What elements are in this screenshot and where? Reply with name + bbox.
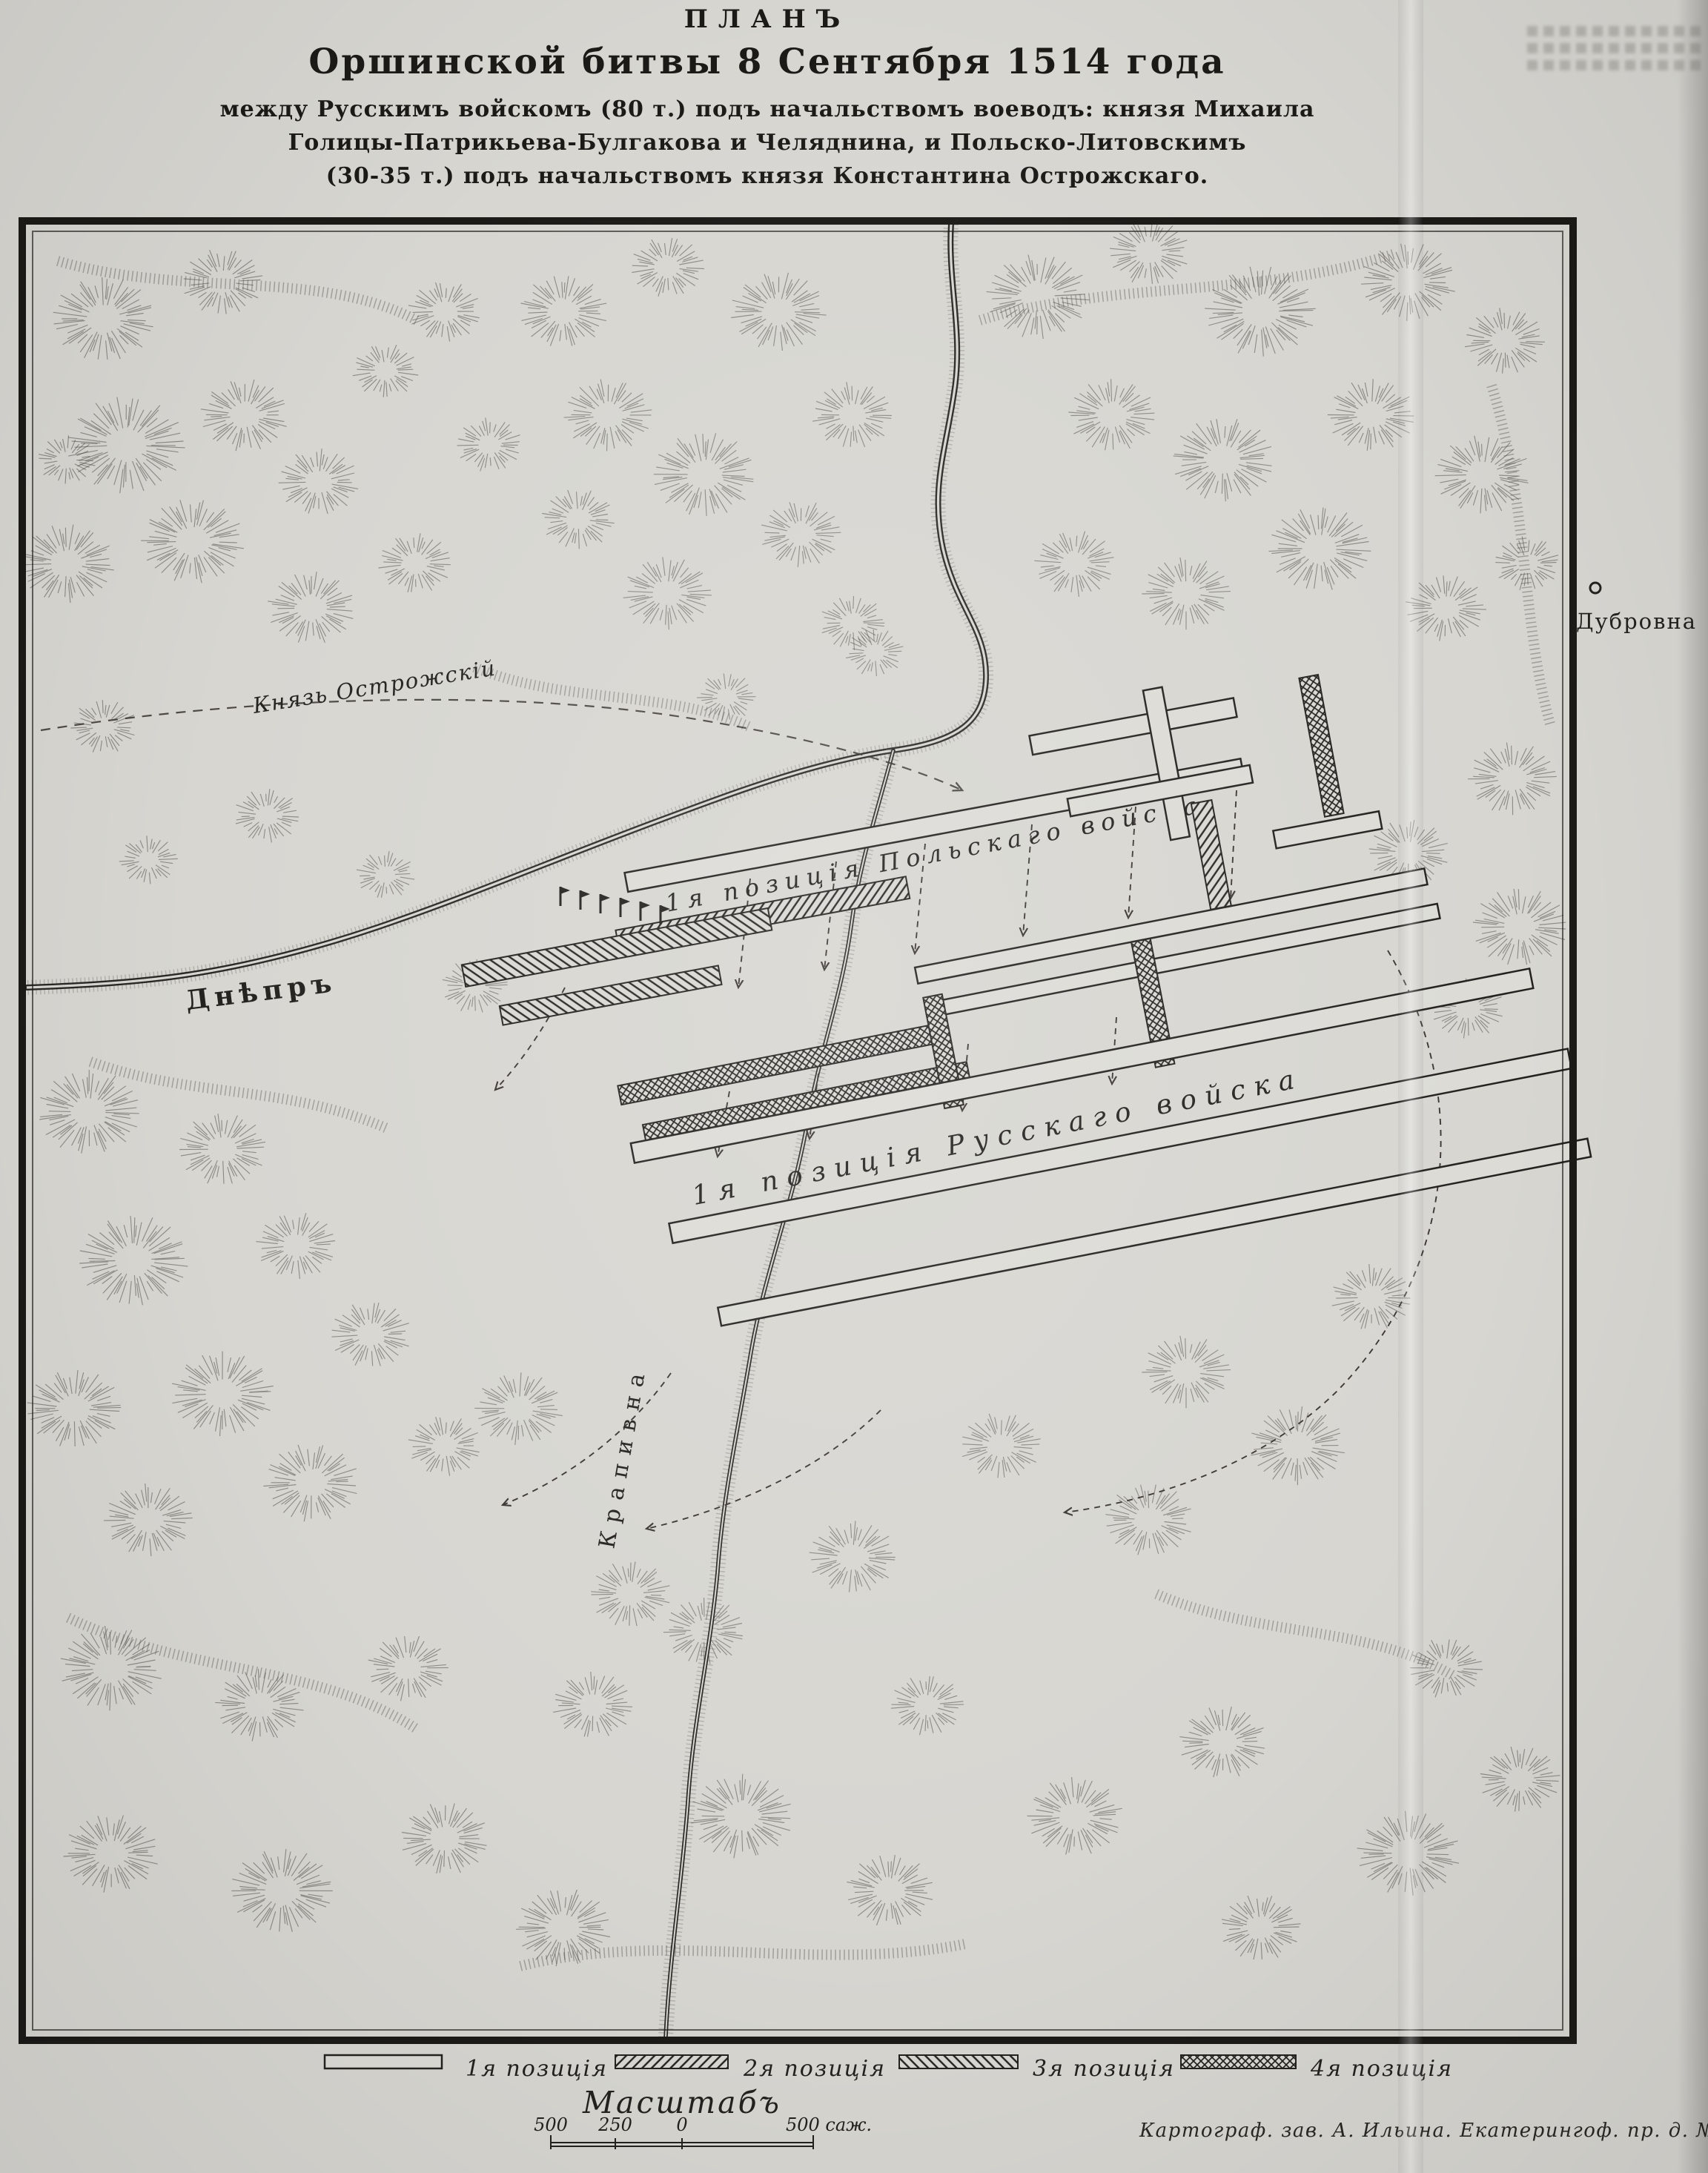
battle-map: 1я позиція Польскаго войска (0, 0, 1708, 2173)
scale-unit-label: 500 саж. (786, 2114, 872, 2135)
legend-swatch-2 (615, 2055, 728, 2068)
town-dubrovna: Дубровна (1576, 583, 1697, 634)
russian-forward-bars (915, 867, 1440, 1019)
town-marker-icon (1590, 583, 1601, 593)
legend-label-2: 2я позиція (743, 2056, 886, 2082)
scale-tick-500: 500 (534, 2114, 568, 2135)
legend: 1я позиція 2я позиція 3я позиція 4я пози… (325, 2055, 1453, 2082)
legend-swatch-3 (899, 2055, 1018, 2068)
map-sheet: ПЛАНЪ Оршинской битвы 8 Сентября 1514 го… (0, 0, 1708, 2173)
russian-hatched-group (462, 908, 780, 1031)
ostrozhsky-route-line (41, 700, 962, 790)
position-bar (462, 908, 772, 987)
scale-tick-0: 0 (676, 2114, 687, 2135)
legend-label-1: 1я позиція (466, 2056, 608, 2082)
position-bar (1299, 675, 1343, 817)
position-bar (1191, 800, 1231, 910)
town-label: Дубровна (1576, 609, 1697, 634)
river-krapivna-label: Крапивна (594, 1363, 652, 1550)
cartographer-credit: Картограф. зав. А. Ильина. Екатерингоф. … (1139, 2120, 1708, 2142)
scale-tick-250: 250 (598, 2114, 632, 2135)
ostrozhsky-route-label: Князь Острожскій (251, 655, 498, 718)
legend-swatch-4 (1181, 2055, 1296, 2068)
flag-markers (560, 887, 670, 925)
position-bar (1029, 698, 1237, 755)
legend-label-4: 4я позиція (1310, 2056, 1453, 2082)
legend-label-3: 3я позиція (1033, 2056, 1175, 2082)
print-bleed-artifact (1527, 19, 1702, 108)
legend-swatch-1 (325, 2055, 442, 2068)
scale-section: Масштабъ 500 250 0 500 саж. (534, 2085, 872, 2149)
